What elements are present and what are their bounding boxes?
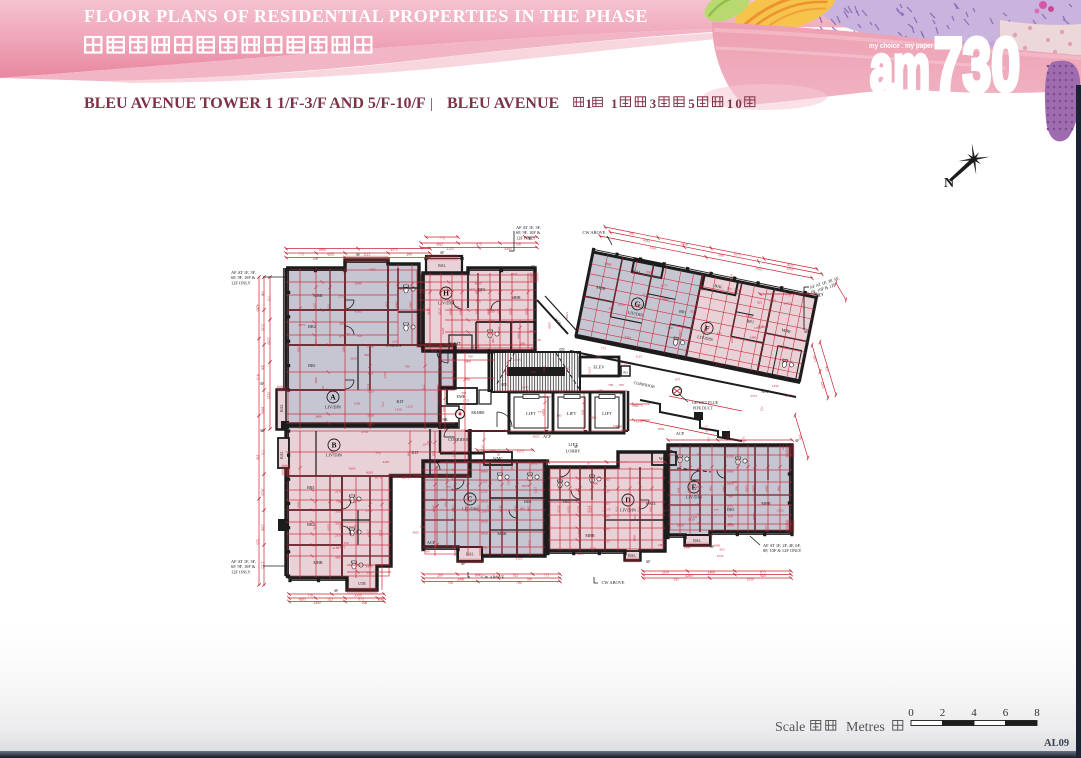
svg-text:775: 775	[439, 237, 445, 241]
svg-text:AF: AF	[804, 330, 809, 334]
svg-text:1800: 1800	[260, 406, 264, 413]
svg-text:KIT: KIT	[412, 450, 419, 455]
svg-text:1075: 1075	[452, 450, 456, 457]
svg-text:700: 700	[608, 383, 613, 387]
svg-text:BAL: BAL	[280, 451, 284, 459]
svg-text:1125: 1125	[266, 392, 270, 399]
svg-text:925: 925	[488, 331, 494, 335]
svg-text:775: 775	[781, 445, 785, 450]
svg-text:1350: 1350	[505, 368, 509, 375]
svg-text:4265: 4265	[450, 488, 457, 492]
svg-text:2725: 2725	[511, 272, 518, 276]
svg-text:2725: 2725	[366, 509, 373, 513]
svg-text:925: 925	[757, 300, 762, 304]
svg-text:2400: 2400	[459, 308, 463, 315]
svg-text:1800: 1800	[481, 469, 488, 473]
svg-text:200: 200	[260, 365, 264, 371]
svg-text:BAL: BAL	[693, 539, 701, 543]
svg-text:875: 875	[340, 546, 345, 550]
svg-text:3025: 3025	[522, 484, 529, 488]
svg-text:200: 200	[481, 509, 487, 513]
svg-text:1125: 1125	[367, 389, 374, 393]
svg-text:3350: 3350	[727, 454, 734, 458]
svg-text:AL09: AL09	[1044, 738, 1069, 749]
svg-text:0: 0	[908, 707, 914, 719]
svg-text:150: 150	[581, 409, 585, 415]
svg-text:2575: 2575	[487, 505, 491, 512]
svg-text:2575: 2575	[785, 393, 792, 397]
svg-text:2400: 2400	[313, 601, 320, 605]
svg-text:3025: 3025	[412, 530, 419, 534]
svg-text:875: 875	[730, 338, 734, 343]
svg-text:CORRIDOR: CORRIDOR	[448, 437, 470, 442]
svg-text:2400: 2400	[432, 505, 436, 512]
svg-text:875: 875	[675, 377, 680, 381]
svg-text:3350: 3350	[367, 422, 374, 426]
svg-text:LIV/DIN: LIV/DIN	[325, 405, 341, 410]
svg-text:200: 200	[313, 257, 319, 261]
svg-text:B: B	[331, 441, 336, 450]
svg-text:ACP: ACP	[761, 389, 770, 394]
svg-text:5: 5	[688, 96, 695, 111]
svg-text:2575: 2575	[533, 486, 537, 493]
svg-text:700: 700	[260, 291, 264, 297]
svg-text:3350: 3350	[439, 498, 446, 502]
svg-text:2725: 2725	[557, 506, 561, 513]
svg-text:4265: 4265	[504, 247, 511, 251]
svg-text:1950: 1950	[747, 578, 754, 582]
svg-text:1350: 1350	[525, 308, 529, 315]
svg-text:4265: 4265	[256, 304, 260, 311]
svg-text:200: 200	[461, 391, 466, 395]
svg-text:PD: PD	[620, 392, 625, 396]
svg-text:4265: 4265	[590, 415, 597, 419]
svg-text:BR1: BR1	[308, 363, 316, 368]
svg-text:2150: 2150	[499, 505, 503, 512]
svg-text:LIFT: LIFT	[526, 411, 536, 416]
svg-text:2400: 2400	[752, 513, 756, 520]
svg-text:2575: 2575	[531, 346, 538, 350]
svg-text:3025: 3025	[603, 501, 610, 505]
svg-text:BLEU AVENUE: BLEU AVENUE	[447, 95, 559, 112]
svg-text:775: 775	[260, 449, 264, 455]
svg-text:LIFT: LIFT	[602, 411, 612, 416]
svg-text:1800: 1800	[318, 248, 325, 252]
svg-text:3025: 3025	[436, 243, 443, 247]
svg-text:4265: 4265	[369, 268, 376, 272]
svg-text:1350: 1350	[678, 330, 682, 337]
svg-text:2400: 2400	[517, 332, 521, 339]
svg-text:3025: 3025	[577, 552, 584, 556]
svg-text:1075: 1075	[429, 460, 436, 464]
svg-text:925: 925	[531, 370, 536, 374]
svg-text:1350: 1350	[745, 485, 749, 492]
svg-text:1800: 1800	[727, 469, 734, 473]
svg-text:CW ABOVE: CW ABOVE	[482, 575, 505, 580]
svg-text:775: 775	[538, 410, 543, 414]
svg-text:1125: 1125	[635, 355, 642, 359]
svg-text:AF: AF	[260, 382, 265, 386]
svg-text:4265: 4265	[366, 470, 373, 474]
svg-text:2400: 2400	[577, 488, 581, 495]
svg-text:775: 775	[375, 451, 381, 455]
svg-text:AF: AF	[356, 253, 361, 257]
svg-text:1125: 1125	[481, 489, 488, 493]
svg-text:2400: 2400	[750, 336, 757, 340]
svg-text:2575: 2575	[543, 430, 550, 434]
svg-text:1125: 1125	[379, 530, 383, 537]
svg-text:1950: 1950	[657, 427, 664, 431]
svg-text:925: 925	[328, 598, 334, 602]
svg-text:2725: 2725	[587, 506, 591, 513]
svg-text:1125: 1125	[516, 557, 523, 561]
svg-text:1350: 1350	[510, 463, 514, 470]
svg-text:3350: 3350	[367, 413, 374, 417]
svg-text:2725: 2725	[361, 430, 368, 434]
svg-text:3350: 3350	[347, 525, 354, 529]
svg-text:2575: 2575	[661, 284, 668, 288]
svg-text:150: 150	[345, 332, 350, 336]
svg-text:3350: 3350	[547, 322, 551, 329]
svg-text:ACP: ACP	[676, 431, 685, 436]
svg-text:700: 700	[637, 479, 641, 484]
svg-text:3350: 3350	[649, 245, 657, 250]
svg-text:2725: 2725	[260, 561, 264, 568]
svg-text:775: 775	[266, 296, 270, 302]
svg-text:2725: 2725	[339, 294, 346, 298]
svg-text:775: 775	[327, 304, 331, 310]
svg-text:2400: 2400	[395, 301, 399, 308]
svg-text:700: 700	[516, 581, 522, 585]
svg-text:AF: AF	[260, 429, 265, 433]
svg-text:4265: 4265	[603, 514, 610, 518]
svg-text:2725: 2725	[422, 305, 426, 312]
svg-text:1950: 1950	[677, 523, 684, 527]
svg-text:3350: 3350	[636, 419, 643, 423]
svg-text:2400: 2400	[315, 414, 322, 418]
svg-text:875: 875	[256, 374, 260, 380]
svg-text:1950: 1950	[784, 301, 791, 305]
svg-text:150: 150	[706, 436, 710, 441]
svg-text:1350: 1350	[297, 345, 301, 352]
svg-text:1125: 1125	[427, 308, 431, 315]
svg-text:1125: 1125	[481, 479, 488, 483]
svg-text:1075: 1075	[298, 323, 305, 327]
svg-text:700: 700	[564, 367, 569, 371]
svg-text:2725: 2725	[481, 445, 485, 452]
svg-text:UTR: UTR	[386, 343, 395, 348]
svg-text:CORRIDOR: CORRIDOR	[633, 380, 655, 389]
svg-text:3350: 3350	[335, 509, 342, 513]
svg-text:LIV/DIN: LIV/DIN	[326, 453, 342, 458]
svg-text:3025: 3025	[335, 555, 342, 559]
svg-text:1950: 1950	[531, 461, 538, 465]
svg-text:1350: 1350	[509, 308, 513, 315]
svg-text:3: 3	[650, 96, 657, 111]
svg-text:Scale: Scale	[775, 720, 805, 735]
svg-text:2150: 2150	[332, 546, 339, 550]
svg-text:1350: 1350	[764, 525, 768, 532]
svg-text:R&MRR: R&MRR	[471, 411, 485, 415]
svg-text:200: 200	[339, 321, 345, 325]
svg-text:1125: 1125	[462, 404, 466, 411]
svg-text:925: 925	[513, 574, 519, 578]
svg-text:775: 775	[601, 347, 606, 351]
svg-text:700: 700	[420, 525, 425, 529]
svg-text:ELEV: ELEV	[593, 365, 605, 370]
svg-text:1950: 1950	[497, 327, 501, 334]
svg-text:2725: 2725	[777, 509, 784, 513]
svg-text:925: 925	[760, 574, 766, 578]
svg-text:925: 925	[427, 440, 432, 444]
svg-text:CW ABOVE: CW ABOVE	[602, 580, 625, 585]
svg-text:1800: 1800	[633, 535, 637, 542]
svg-text:875: 875	[727, 504, 733, 508]
svg-text:775: 775	[637, 506, 641, 512]
svg-text:3350: 3350	[419, 291, 426, 295]
svg-text:1075: 1075	[812, 355, 818, 363]
svg-text:1075: 1075	[475, 289, 482, 293]
svg-text:700: 700	[727, 494, 733, 498]
svg-text:3350: 3350	[335, 521, 342, 525]
svg-text:3025: 3025	[364, 353, 371, 357]
svg-text:ACP: ACP	[543, 434, 552, 439]
svg-text:1800: 1800	[765, 485, 769, 492]
svg-text:775: 775	[475, 299, 481, 303]
svg-text:700: 700	[465, 377, 471, 381]
svg-text:2400: 2400	[708, 571, 715, 575]
svg-text:2575: 2575	[627, 506, 631, 513]
svg-text:775: 775	[298, 253, 304, 257]
svg-text:2400: 2400	[457, 578, 464, 582]
svg-text:BAL: BAL	[628, 554, 636, 558]
svg-text:CW ABOVE: CW ABOVE	[583, 230, 606, 235]
svg-text:700: 700	[336, 499, 342, 503]
svg-text:BR2: BR2	[308, 324, 316, 329]
svg-text:1950: 1950	[481, 531, 488, 535]
svg-text:2575: 2575	[716, 363, 723, 367]
svg-text:UTR: UTR	[358, 582, 366, 586]
svg-text:AF: AF	[816, 293, 821, 297]
svg-text:925: 925	[507, 480, 511, 485]
svg-text:2725: 2725	[620, 362, 627, 366]
svg-text:150: 150	[556, 414, 561, 418]
svg-text:2725: 2725	[438, 308, 442, 315]
svg-text:3350: 3350	[587, 462, 591, 469]
svg-text:1075: 1075	[441, 328, 445, 335]
svg-text:2575: 2575	[313, 303, 317, 310]
svg-text:1075: 1075	[587, 367, 591, 374]
svg-text:1075: 1075	[469, 287, 476, 291]
svg-text:4265: 4265	[577, 530, 581, 537]
svg-text:700: 700	[708, 534, 713, 538]
svg-text:200: 200	[362, 601, 368, 605]
svg-text:ACP: ACP	[394, 343, 403, 348]
svg-text:1125: 1125	[514, 505, 518, 512]
svg-text:700: 700	[777, 486, 781, 492]
svg-text:200: 200	[442, 406, 446, 412]
svg-text:3025: 3025	[577, 506, 581, 513]
svg-text:1350: 1350	[395, 407, 402, 411]
svg-text:3350: 3350	[567, 506, 571, 513]
svg-text:1350: 1350	[353, 402, 360, 406]
svg-text:925: 925	[674, 578, 680, 582]
svg-text:1950: 1950	[409, 301, 413, 308]
svg-text:925: 925	[547, 395, 552, 399]
svg-text:AF: AF	[795, 439, 800, 443]
svg-text:AF: AF	[574, 445, 579, 449]
svg-text:3350: 3350	[786, 267, 794, 272]
svg-text:2150: 2150	[740, 439, 747, 443]
svg-text:4265: 4265	[299, 598, 306, 602]
svg-text:3025: 3025	[261, 489, 265, 496]
svg-text:1125: 1125	[603, 539, 610, 543]
svg-text:1800: 1800	[591, 482, 598, 486]
svg-text:1800: 1800	[474, 574, 481, 578]
svg-text:3025: 3025	[475, 281, 482, 285]
svg-text:4: 4	[971, 707, 977, 719]
svg-text:D: D	[625, 496, 631, 505]
svg-text:3350: 3350	[757, 325, 764, 329]
svg-text:775: 775	[422, 384, 426, 390]
svg-text:2575: 2575	[750, 394, 757, 398]
svg-text:1950: 1950	[542, 366, 546, 373]
svg-text:200: 200	[378, 598, 384, 602]
svg-text:1800: 1800	[489, 450, 496, 454]
svg-text:3350: 3350	[488, 319, 495, 323]
svg-text:925: 925	[255, 539, 259, 545]
svg-text:2575: 2575	[383, 372, 387, 379]
svg-text:1950: 1950	[449, 308, 453, 315]
svg-text:3025: 3025	[631, 403, 638, 407]
svg-text:1075: 1075	[514, 358, 521, 362]
svg-text:150: 150	[343, 541, 348, 545]
svg-text:1125: 1125	[603, 489, 610, 493]
svg-text:775: 775	[381, 402, 385, 407]
svg-text:LIV/DIN: LIV/DIN	[462, 507, 478, 512]
svg-text:3025: 3025	[507, 321, 514, 325]
svg-text:700: 700	[405, 364, 410, 368]
svg-text:3025: 3025	[603, 477, 610, 481]
svg-text:1: 1	[611, 96, 618, 111]
svg-text:1125: 1125	[446, 247, 453, 251]
svg-text:MBR: MBR	[585, 533, 595, 538]
svg-text:2150: 2150	[414, 473, 421, 477]
svg-text:1350: 1350	[367, 344, 374, 348]
svg-text:925: 925	[520, 507, 525, 511]
svg-text:GENSET FLUE: GENSET FLUE	[692, 400, 719, 405]
svg-text:700: 700	[425, 550, 430, 554]
svg-text:775: 775	[366, 571, 372, 575]
svg-text:875: 875	[313, 524, 317, 530]
svg-text:AF: AF	[528, 237, 533, 241]
svg-text:2150: 2150	[465, 505, 469, 512]
svg-text:3025: 3025	[604, 508, 611, 512]
svg-text:1800: 1800	[464, 359, 471, 363]
svg-text:LIFT: LIFT	[567, 411, 577, 416]
svg-text:3350: 3350	[354, 594, 361, 598]
svg-text:1075: 1075	[517, 450, 524, 454]
svg-text:AF: AF	[531, 265, 536, 269]
svg-text:925: 925	[735, 486, 739, 492]
svg-text:3350: 3350	[688, 518, 695, 522]
svg-text:700: 700	[516, 243, 522, 247]
svg-text:2725: 2725	[717, 554, 724, 558]
svg-text:BAL: BAL	[280, 404, 284, 412]
svg-text:2725: 2725	[618, 303, 625, 307]
svg-text:200: 200	[406, 253, 412, 257]
svg-text:1: 1	[727, 96, 734, 111]
svg-text:700: 700	[448, 581, 454, 585]
svg-text:DN: DN	[559, 348, 565, 352]
svg-text:12F ONLY: 12F ONLY	[231, 280, 252, 285]
svg-text:1350: 1350	[633, 514, 637, 521]
svg-text:150: 150	[559, 390, 565, 394]
svg-text:875: 875	[481, 546, 487, 550]
svg-text:150: 150	[357, 334, 362, 338]
svg-text:KIT: KIT	[397, 399, 404, 404]
svg-text:1800: 1800	[314, 377, 318, 384]
svg-text:2725: 2725	[696, 485, 703, 489]
svg-text:2725: 2725	[463, 399, 470, 403]
svg-text:2150: 2150	[534, 338, 541, 342]
svg-text:2150: 2150	[367, 530, 371, 537]
svg-text:2: 2	[940, 707, 946, 719]
svg-text:700: 700	[667, 326, 672, 330]
svg-text:BAL: BAL	[438, 264, 446, 268]
svg-text:2150: 2150	[335, 489, 342, 493]
svg-text:1075: 1075	[522, 385, 529, 389]
svg-text:925: 925	[514, 485, 518, 490]
svg-text:2575: 2575	[635, 304, 642, 308]
svg-text:700: 700	[619, 383, 624, 387]
svg-text:875: 875	[609, 306, 614, 310]
svg-text:DN: DN	[501, 383, 507, 387]
svg-text:1: 1	[586, 96, 593, 111]
svg-text:8: 8	[1034, 707, 1040, 719]
svg-text:2150: 2150	[769, 298, 776, 302]
svg-text:200: 200	[527, 506, 531, 512]
svg-text:700: 700	[321, 386, 325, 391]
svg-text:925: 925	[454, 305, 459, 309]
svg-text:4265: 4265	[685, 574, 692, 578]
svg-text:1350: 1350	[488, 309, 495, 313]
svg-text:150: 150	[677, 487, 681, 493]
svg-text:1350: 1350	[596, 389, 603, 393]
svg-text:AF: AF	[646, 560, 651, 564]
svg-text:4265: 4265	[327, 253, 334, 257]
svg-text:3025: 3025	[350, 356, 357, 360]
svg-text:4265: 4265	[481, 461, 488, 465]
svg-text:2575: 2575	[390, 248, 397, 252]
svg-text:700: 700	[649, 506, 653, 512]
svg-text:A: A	[330, 393, 336, 402]
svg-text:LOBBY: LOBBY	[566, 449, 582, 454]
svg-text:AF: AF	[710, 545, 715, 549]
svg-text:700: 700	[444, 501, 448, 507]
svg-text:775: 775	[615, 506, 619, 512]
svg-text:1125: 1125	[590, 547, 597, 551]
svg-text:150: 150	[385, 302, 389, 308]
svg-text:BLEU AVENUE TOWER 1 1/F-3/F A: BLEU AVENUE TOWER 1 1/F-3/F AND 5/F-10/F	[84, 95, 426, 112]
svg-text:875: 875	[432, 349, 437, 353]
svg-text:4265: 4265	[529, 329, 536, 333]
svg-text:8F, 10F & 12F ONLY: 8F, 10F & 12F ONLY	[763, 548, 802, 554]
svg-text:LIV/DIN: LIV/DIN	[438, 301, 454, 306]
svg-text:200: 200	[491, 338, 495, 343]
svg-text:200: 200	[437, 574, 443, 578]
svg-text:1125: 1125	[314, 339, 318, 346]
